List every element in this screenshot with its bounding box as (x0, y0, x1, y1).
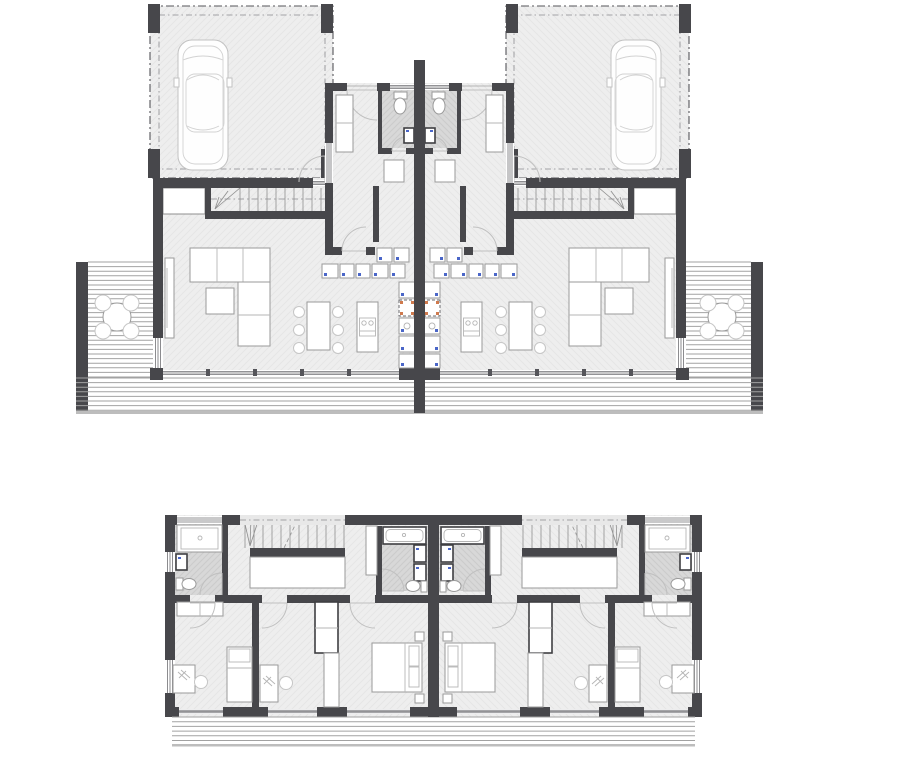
sofa (569, 248, 649, 282)
desk (173, 665, 195, 693)
sink (441, 545, 453, 562)
kitchen-island (357, 302, 378, 352)
toilet (406, 581, 420, 592)
deck (76, 378, 420, 410)
stair-void (522, 557, 617, 588)
unit-left (165, 515, 434, 747)
sofa (190, 248, 270, 282)
terrace-wall (76, 262, 88, 411)
bed (227, 647, 252, 702)
wc-toilet (433, 98, 445, 114)
closet (634, 188, 676, 214)
toilet (447, 581, 461, 592)
shower (645, 525, 690, 552)
double-bed (372, 643, 422, 692)
unit-right (420, 4, 764, 414)
entry-wardrobe (336, 95, 353, 152)
floor-plan-canvas (0, 0, 918, 780)
double-bed (445, 643, 495, 692)
wardrobe (315, 602, 338, 653)
bed (615, 647, 640, 702)
hall-closet (366, 526, 377, 575)
party-wall (428, 515, 439, 717)
kitchen-island (461, 302, 482, 352)
balcony-deck (172, 717, 434, 741)
sink (441, 564, 453, 581)
entry-wardrobe (486, 95, 503, 152)
wc-toilet (394, 98, 406, 114)
toilet (671, 579, 685, 590)
balcony-deck (434, 717, 696, 741)
desk (672, 665, 694, 693)
sink (176, 554, 187, 570)
upper-floor-plan (165, 515, 702, 747)
sink (680, 554, 691, 570)
tv-sideboard (665, 258, 674, 338)
sink (414, 564, 426, 581)
shared-walls (414, 60, 425, 413)
unit-right (434, 515, 703, 747)
tv-sideboard (165, 258, 174, 338)
party-wall (414, 60, 425, 413)
coffee-table (605, 288, 633, 314)
dining-table (509, 302, 532, 350)
shared-walls (428, 515, 439, 717)
closet (163, 188, 205, 214)
stair-void (250, 557, 345, 588)
dining-table (307, 302, 330, 350)
deck (420, 378, 764, 410)
carport-floor (506, 6, 689, 178)
wardrobe (529, 602, 552, 653)
ground-floor-plan (76, 4, 763, 414)
unit-left (76, 4, 420, 414)
shower (177, 525, 222, 552)
terrace-wall (751, 262, 763, 411)
toilet (182, 579, 196, 590)
floor-plan-drawing (0, 0, 918, 780)
carport-floor (150, 6, 333, 178)
sink (414, 545, 426, 562)
coffee-table (206, 288, 234, 314)
hall-closet (490, 526, 501, 575)
